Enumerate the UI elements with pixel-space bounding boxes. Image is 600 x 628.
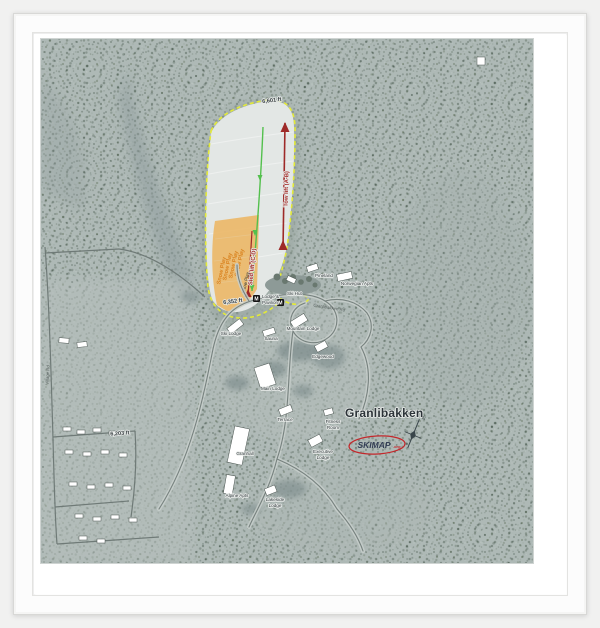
label-lakeside-line2: Lodge <box>269 503 282 508</box>
label-mountain-lodge: Mountain Lodge <box>287 326 320 331</box>
label-executive-line2: Lodge <box>317 455 330 460</box>
label-fitness-line2: Room <box>327 425 339 430</box>
lift-main-label: Tow lift (A-B) <box>284 171 291 207</box>
framed-print-scene: Tow lift (A-B) Sled lift (C-D) Snow Play… <box>0 0 600 628</box>
label-fitness-line1: Fitness <box>326 419 342 424</box>
trail-map-artwork: Tow lift (A-B) Sled lift (C-D) Snow Play… <box>41 39 533 563</box>
label-pineland: Pineland <box>315 273 333 278</box>
label-village-rd: Village Rd <box>44 364 50 384</box>
label-ski-lodge: Ski Lodge <box>221 331 242 336</box>
skihut-amenity-icon: M <box>278 301 282 307</box>
label-main-lodge: Main Lodge <box>261 386 285 391</box>
label-granhall: Granhall <box>236 451 253 456</box>
skimap-logo-tld: .org <box>393 444 401 449</box>
label-norwegian-apts: Norwegian Apts <box>341 281 374 286</box>
label-lodge-line2: Pavilion <box>262 300 279 305</box>
label-ski-hut: Ski Hut <box>287 291 303 296</box>
label-lodge-line1: Lodge & <box>262 294 279 299</box>
trail-map-svg: Tow lift (A-B) Sled lift (C-D) Snow Play… <box>41 39 533 563</box>
label-lakeside-line1: Lakeside <box>266 497 285 502</box>
label-terrace: Terrace <box>277 417 293 422</box>
lodge-amenity-icon: M <box>254 297 258 303</box>
label-edgewood: Edgewood <box>312 354 334 359</box>
label-alpine-apts: Alpine Apts <box>226 493 250 498</box>
label-executive-line1: Executive <box>313 449 333 454</box>
resort-title: Granlibakken <box>345 406 423 420</box>
label-sauna: Sauna <box>264 336 278 341</box>
skimap-logo-text: SKIMAP <box>357 440 390 450</box>
